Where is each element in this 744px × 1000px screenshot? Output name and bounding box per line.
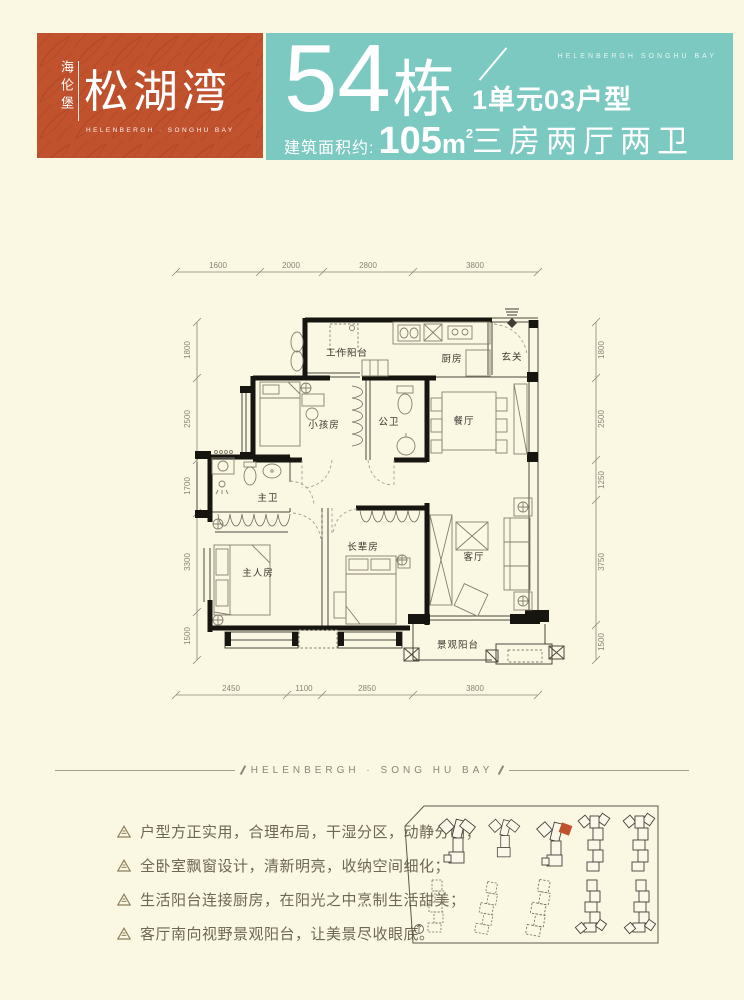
header-brand-english: HELENBERGH SONGHU BAY: [558, 53, 717, 60]
dimension-lines: [172, 268, 600, 699]
feature-text: 客厅南向视野景观阳台，让美景尽收眼底。: [140, 923, 435, 944]
dim-bottom-2: 1100: [295, 684, 313, 693]
room-label-child-room: 小孩房: [308, 419, 340, 431]
compass-icon: [415, 925, 424, 934]
brand-name-english: HELENBERGH · SONGHU BAY: [86, 127, 235, 134]
room-label-foyer: 玄关: [501, 351, 522, 363]
basin: [397, 437, 415, 455]
room-label-view-balcony: 景观阳台: [437, 639, 479, 651]
siteplan-building: [439, 813, 655, 871]
kitchen-sink: [398, 325, 420, 341]
wall-piers: [195, 320, 549, 646]
room-label-kitchen: 厨房: [441, 353, 462, 365]
siteplan-building-dotted: [428, 879, 552, 937]
divider-slash-right: [498, 765, 504, 775]
mountain-bullet-icon: [117, 927, 131, 940]
dim-left-1: 1800: [183, 341, 192, 359]
brand-name-main: 松湖湾: [84, 55, 231, 120]
sofa: [504, 518, 530, 590]
dim-top-4: 3800: [466, 261, 484, 270]
floor-plan: 1600 2000 2800 3800 2450 1100 2850 3800 …: [0, 250, 744, 720]
footer-divider: HELENBERGH · SONG HU BAY: [55, 763, 689, 777]
dim-right-2: 2500: [597, 410, 606, 428]
divider-brand-text: HELENBERGH · SONG HU BAY: [251, 765, 494, 776]
area-line: 建筑面积约: 105 m 2: [284, 122, 473, 160]
divider-line-left: [55, 770, 235, 771]
dim-bottom-4: 3800: [466, 684, 484, 693]
armchair: [454, 584, 488, 617]
dim-top-2: 2000: [282, 261, 300, 270]
site-plan: [398, 795, 668, 955]
room-labels: 工作阳台 厨房 玄关 小孩房 公卫 餐厅 主卫 主人房 长辈房 客厅 景观阳台: [242, 347, 522, 651]
mountain-bullet-icon: [117, 859, 131, 872]
dim-left-5: 1500: [183, 627, 192, 645]
area-value: 105: [378, 122, 441, 160]
structural-walls: [208, 318, 492, 632]
dim-right-5: 1500: [597, 633, 606, 651]
ac-outdoor-unit: [291, 332, 303, 352]
room-layout-label: 三房两厅两卫: [472, 116, 694, 161]
thin-walls: [197, 318, 564, 664]
room-label-work-balcony: 工作阳台: [326, 347, 368, 359]
dim-right-3: 1250: [597, 471, 606, 489]
room-label-master-room: 主人房: [242, 567, 274, 579]
decor-slash: [479, 47, 508, 80]
dim-bottom-1: 2450: [222, 684, 240, 693]
mountain-bullet-icon: [117, 893, 131, 906]
divider-line-right: [509, 770, 689, 771]
child-bed: [260, 382, 300, 446]
area-prefix: 建筑面积约:: [284, 134, 374, 158]
siteplan-building: [575, 880, 655, 934]
dim-top-3: 2800: [359, 261, 377, 270]
dim-left-3: 1700: [183, 477, 192, 495]
brand-logo-box: 海伦堡 松湖湾 HELENBERGH · SONGHU BAY: [37, 33, 263, 158]
divider-slash-left: [240, 765, 246, 775]
area-unit: m: [442, 129, 466, 160]
room-label-master-bath: 主卫: [257, 492, 278, 504]
washing-machine: [212, 458, 234, 474]
dim-right-4: 3750: [597, 553, 606, 571]
dim-left-2: 2500: [183, 410, 192, 428]
ac-unit-box: [508, 650, 542, 662]
room-label-living: 客厅: [463, 551, 484, 563]
room-label-elder-room: 长辈房: [347, 541, 379, 553]
building-number-suffix: 栋: [393, 60, 455, 122]
dim-top-1: 1600: [209, 261, 227, 270]
ac-unit-box: [299, 630, 337, 648]
room-label-dining: 餐厅: [453, 415, 474, 427]
mountain-bullet-icon: [117, 825, 131, 838]
room-label-public-bath: 公卫: [378, 417, 399, 428]
unit-type-label: 1单元03户型: [472, 78, 632, 117]
siteplan-building-highlighted: [537, 822, 573, 866]
unit-title-box: HELENBERGH SONGHU BAY 54 栋 建筑面积约: 105 m …: [266, 33, 733, 160]
poster-page: 海伦堡 松湖湾 HELENBERGH · SONGHU BAY HELENBER…: [0, 0, 744, 1000]
dim-bottom-3: 2850: [358, 684, 376, 693]
building-number: 54 栋: [284, 33, 455, 125]
brand-divider-rule: [78, 61, 79, 121]
dim-right-1: 1800: [597, 341, 606, 359]
building-number-digits: 54: [284, 33, 391, 124]
brand-name-vertical: 海伦堡: [56, 60, 75, 114]
dim-left-4: 3300: [183, 553, 192, 571]
toilet: [398, 394, 412, 414]
